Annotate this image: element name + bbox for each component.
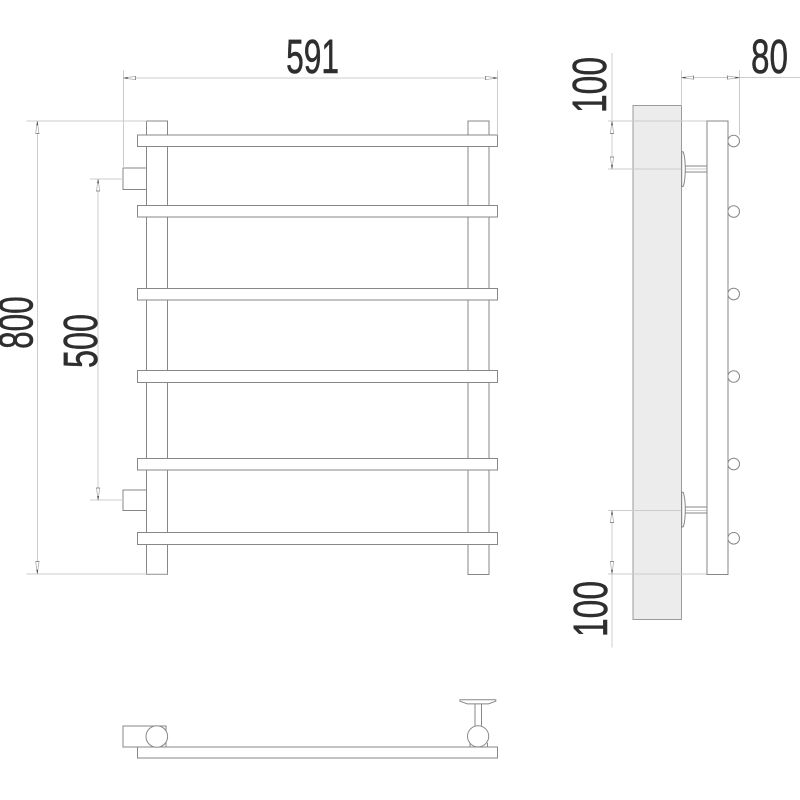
svg-text:80: 80 xyxy=(751,31,788,84)
svg-text:500: 500 xyxy=(55,314,108,368)
svg-text:591: 591 xyxy=(286,31,339,84)
svg-text:100: 100 xyxy=(564,57,617,113)
svg-text:800: 800 xyxy=(0,296,43,349)
svg-text:100: 100 xyxy=(565,581,618,637)
